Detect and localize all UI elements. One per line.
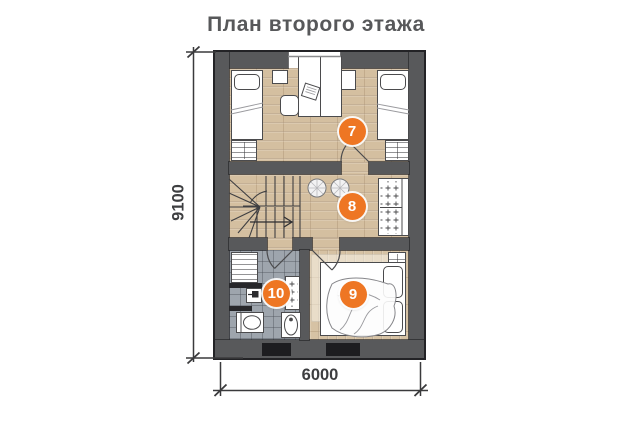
wall-right <box>409 52 424 358</box>
toilet-icon <box>236 312 264 333</box>
threshold-door-10 <box>267 238 293 250</box>
threshold-door-9 <box>312 238 340 250</box>
nightstand-icon-right <box>340 70 356 90</box>
desk-icon <box>298 56 342 117</box>
page-title: План второго этажа <box>0 13 632 37</box>
shelf-icon <box>231 252 258 283</box>
wall-room7-hall-right <box>369 162 409 174</box>
chair-icon <box>280 95 299 116</box>
pillow-icon-room9-bottom <box>383 301 403 333</box>
nightstand-icon-left <box>272 70 288 84</box>
wall-left <box>215 52 229 358</box>
dimension-label-vertical: 9100 <box>170 173 189 233</box>
room-marker-7: 7 <box>339 118 366 145</box>
room-number-7: 7 <box>348 123 356 140</box>
threshold-door-7 <box>341 162 369 174</box>
window-bottom-left-icon <box>262 343 291 356</box>
wall-hall-room9 <box>340 238 409 250</box>
room-marker-9: 9 <box>340 281 367 308</box>
washing-machine-icon <box>246 288 262 303</box>
dresser-icon-left <box>231 140 257 161</box>
dimension-label-horizontal: 6000 <box>290 366 350 385</box>
room-marker-10: 10 <box>263 280 290 307</box>
pillow-icon-room9-top <box>383 266 403 298</box>
washbasin-icon <box>281 312 301 338</box>
room-number-10: 10 <box>268 285 285 302</box>
wall-room7-hall-left <box>229 162 341 174</box>
pillow-icon-right <box>380 74 406 90</box>
bath-stub-wall-2 <box>229 306 252 311</box>
room-marker-8: 8 <box>339 193 366 220</box>
dresser-icon-right <box>385 140 409 161</box>
wall-bottom <box>215 340 424 358</box>
room-number-9: 9 <box>349 286 357 303</box>
floor-plan-page: План второго этажа 9100 6000 <box>0 0 632 433</box>
wall-hall-mid <box>293 238 312 250</box>
room-number-8: 8 <box>348 198 356 215</box>
pillow-icon-left <box>234 74 260 90</box>
wall-hall-bath <box>229 238 267 250</box>
wardrobe-icon <box>378 178 409 236</box>
wall-bath-room9 <box>300 250 309 340</box>
window-bottom-right-icon <box>326 343 360 356</box>
